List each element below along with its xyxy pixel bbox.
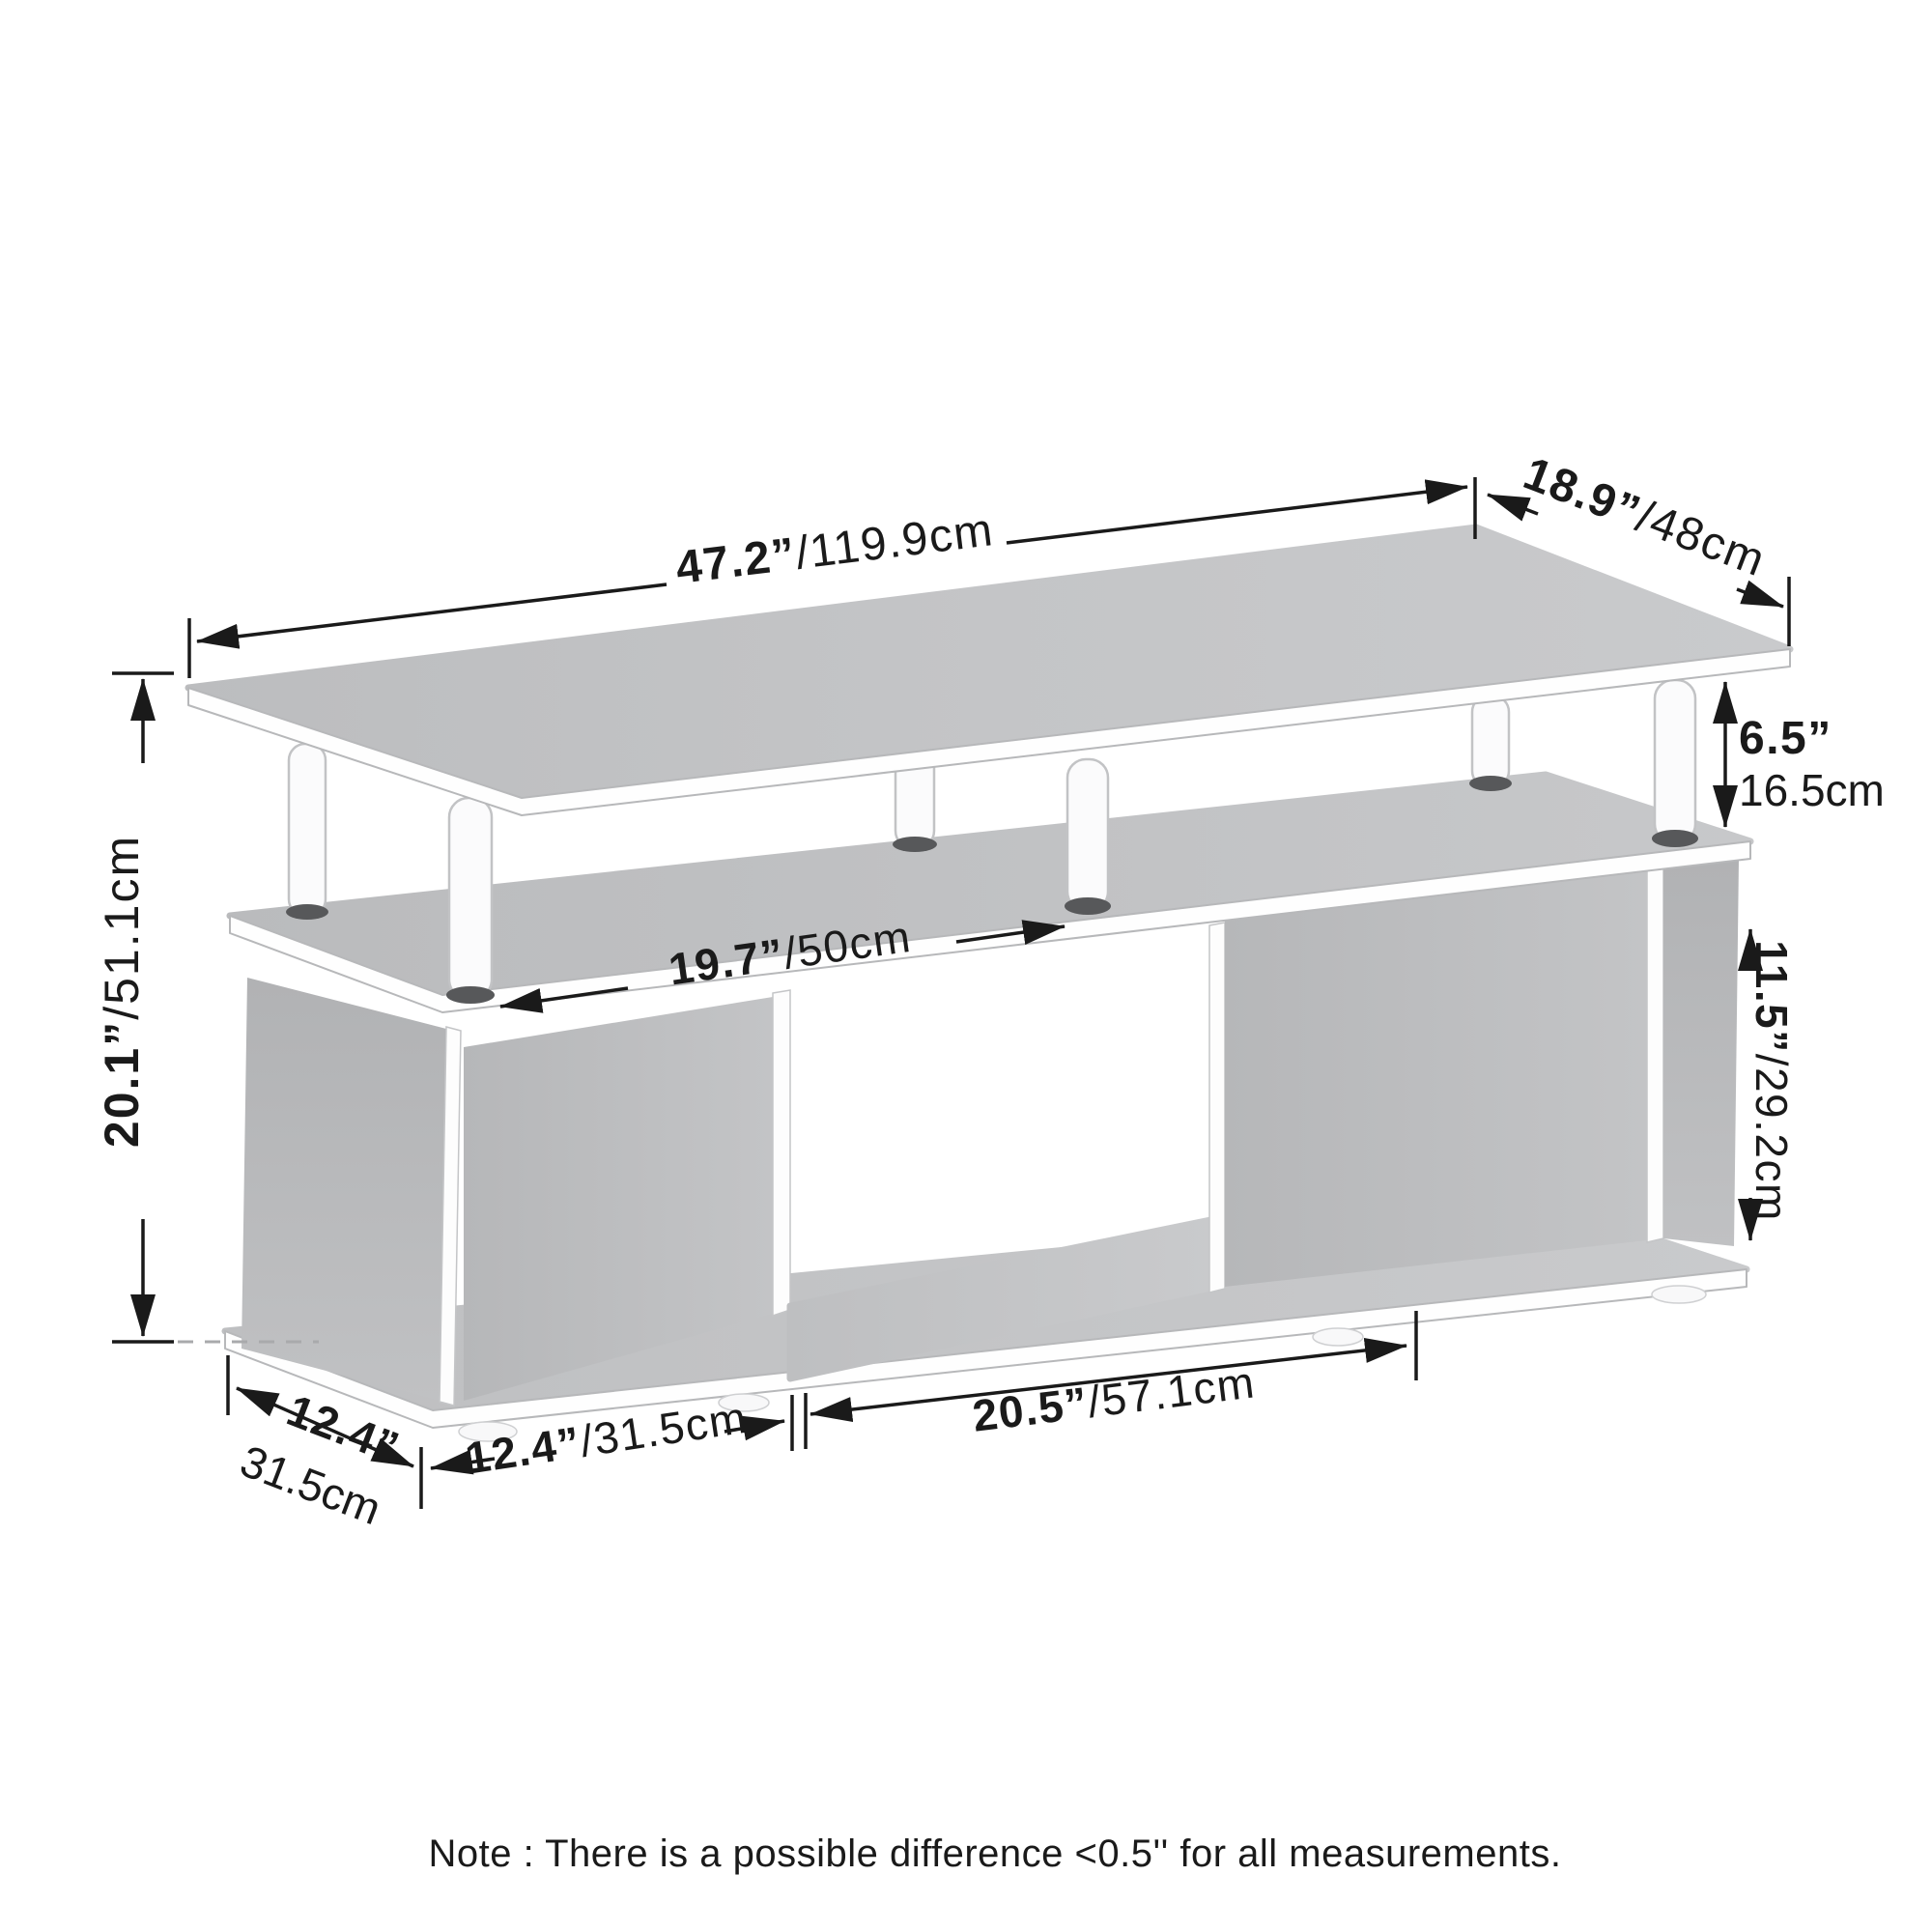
post-left-front-cap [446,986,495,1004]
dimension-label: 20.1”/51.1cm [95,835,149,1148]
right-side-panel [1663,859,1739,1246]
post-middle-front-cap [1065,897,1111,915]
post-right-rear [1472,696,1509,787]
post-left-rear-cap [286,904,328,920]
dimension-label: 47.2”/119.9cm [673,504,997,594]
dimension-diagram-page: 47.2”/119.9cm 18.9”/48cm 6.5” 16.5cm 11.… [0,0,1932,1932]
furniture-dimension-drawing: 47.2”/119.9cm 18.9”/48cm 6.5” 16.5cm 11.… [0,0,1932,1932]
post-right-front [1655,680,1695,842]
foot-mid-right [1313,1328,1363,1346]
dimension-cabinet-height: 11.5”/29.2cm [1747,929,1797,1240]
divider-2-front-edge [1209,923,1225,1293]
post-right-rear-cap [1469,776,1512,791]
dimension-line [1737,589,1783,607]
post-left-rear [289,744,326,916]
dimension-riser-height: 6.5” 16.5cm [1725,682,1885,827]
dimension-label: 11.5”/29.2cm [1747,940,1797,1222]
right-compartment-interior [1225,871,1647,1287]
post-middle-rear-cap [893,837,937,852]
post-middle-front [1067,759,1108,910]
post-right-front-cap [1652,830,1698,847]
dimension-label-cm: 16.5cm [1739,765,1885,815]
top-board [188,527,1790,815]
dimension-line [197,584,667,641]
dimension-label: 20.5”/57.1cm [970,1356,1258,1440]
foot-front-right [1652,1286,1706,1303]
measurement-note: Note : There is a possible difference <0… [429,1833,1562,1875]
right-panel-front-edge [1647,867,1663,1242]
divider-1-front-edge [773,990,790,1316]
post-left-front [449,798,492,999]
left-side-panel [241,978,446,1401]
dimension-label-in: 6.5” [1739,713,1833,764]
